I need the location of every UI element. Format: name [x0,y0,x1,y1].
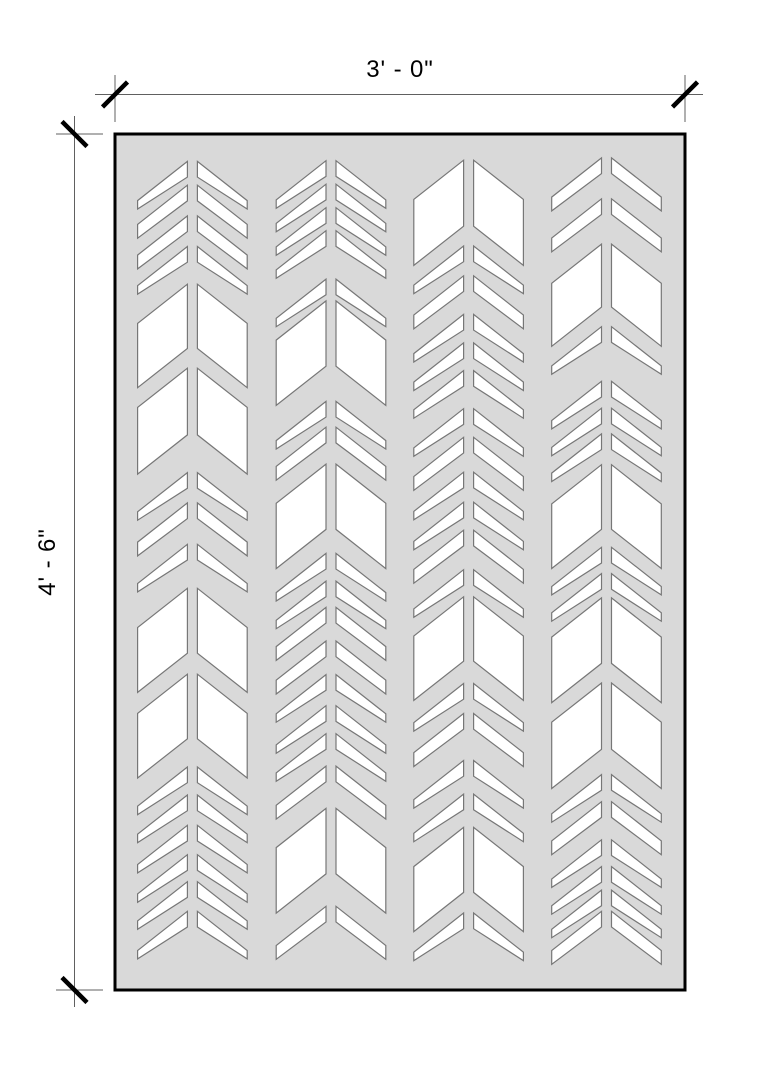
svg-text:3' - 0": 3' - 0" [366,56,433,83]
svg-text:4' - 6": 4' - 6" [34,528,61,595]
